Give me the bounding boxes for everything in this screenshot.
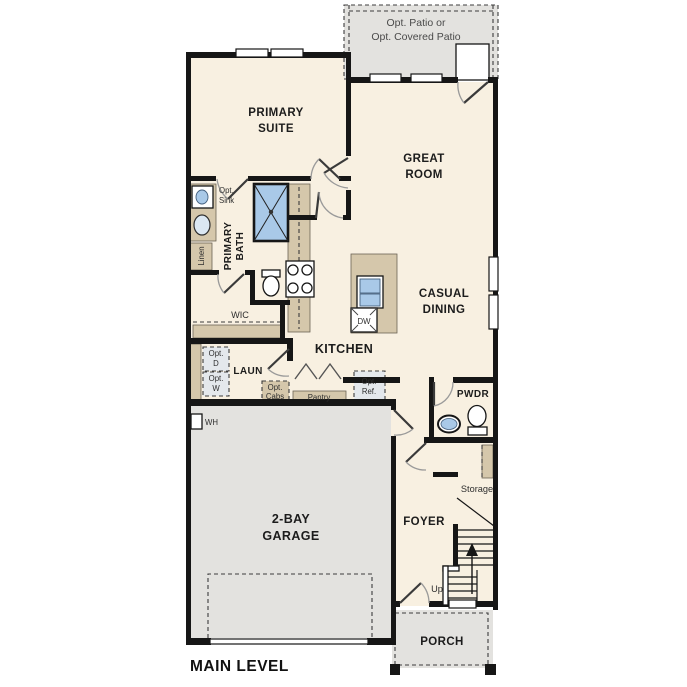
suite-window-2 xyxy=(271,49,303,57)
opt-sink-label-2: Sink xyxy=(219,196,234,205)
floor-plan-canvas: Opt. Patio or Opt. Covered Patio PRIMARY… xyxy=(0,0,687,687)
casual-dining-label-2: DINING xyxy=(423,304,466,316)
opt-w-label-2: W xyxy=(212,384,220,393)
dw-label: DW xyxy=(358,317,372,326)
plan-title: MAIN LEVEL xyxy=(190,658,289,675)
storage-label: Storage xyxy=(461,484,493,494)
dining-window-1 xyxy=(489,257,498,291)
garage-door-panel xyxy=(210,639,368,644)
suite-window-1 xyxy=(236,49,268,57)
island-sink xyxy=(357,276,383,308)
opt-d-label-2: D xyxy=(213,359,219,368)
up-label: Up xyxy=(431,584,443,594)
water-heater xyxy=(191,414,202,429)
primary-suite-label-2: SUITE xyxy=(258,123,294,135)
opt-sink-label-1: Opt. xyxy=(219,186,234,195)
primary-suite-label-1: PRIMARY xyxy=(248,107,303,119)
shower xyxy=(254,184,288,241)
great-room-label-2: ROOM xyxy=(405,169,442,181)
storage-shelf xyxy=(482,445,493,478)
wh-label: WH xyxy=(205,418,218,427)
opt-ref-label-1: Opt. xyxy=(362,377,377,386)
patio-label-1: Opt. Patio or xyxy=(387,17,446,29)
svg-text:BATH: BATH xyxy=(235,232,246,261)
foyer-label: FOYER xyxy=(403,516,445,528)
opt-cabs-label-2: Cabs xyxy=(266,392,284,401)
vanity-sink-1 xyxy=(196,190,208,204)
stove xyxy=(286,261,314,297)
pwdr-label: PWDR xyxy=(457,389,490,400)
opt-w-label-1: Opt. xyxy=(209,374,224,383)
garage-label-1: 2-BAY xyxy=(272,512,311,526)
garage-label-2: GARAGE xyxy=(262,529,319,543)
vanity-sink-2 xyxy=(194,215,210,235)
opt-ref-label-2: Ref. xyxy=(362,387,376,396)
pwdr-sink xyxy=(438,416,460,433)
casual-dining-label-1: CASUAL xyxy=(419,288,469,300)
greatroom-window-1 xyxy=(370,74,401,82)
patio-stoop xyxy=(456,44,489,80)
dining-window-2 xyxy=(489,295,498,329)
pwdr-toilet xyxy=(468,406,487,436)
porch-post-left xyxy=(390,664,400,675)
bath-toilet xyxy=(262,270,280,296)
great-room-label-1: GREAT xyxy=(403,153,444,165)
floor-plan: Opt. Patio or Opt. Covered Patio PRIMARY… xyxy=(0,0,687,687)
wic-shelf xyxy=(193,325,281,338)
foyer-window xyxy=(449,600,476,608)
porch-post-right xyxy=(485,664,496,675)
kitchen-label: KITCHEN xyxy=(315,342,373,356)
opt-d-label-1: Opt. xyxy=(209,349,224,358)
patio-label-2: Opt. Covered Patio xyxy=(371,31,460,43)
pantry-label: Pantry xyxy=(308,393,331,402)
wic-label: WIC xyxy=(231,310,249,320)
stair-rail-side xyxy=(443,566,448,605)
linen-label: Linen xyxy=(197,246,206,265)
greatroom-window-2 xyxy=(411,74,442,82)
porch-label: PORCH xyxy=(420,636,464,648)
laundry-label: LAUN xyxy=(233,366,262,377)
laundry-cabinet xyxy=(190,344,201,401)
svg-text:PRIMARY: PRIMARY xyxy=(223,222,234,271)
opt-cabs-label-1: Opt. xyxy=(268,383,283,392)
